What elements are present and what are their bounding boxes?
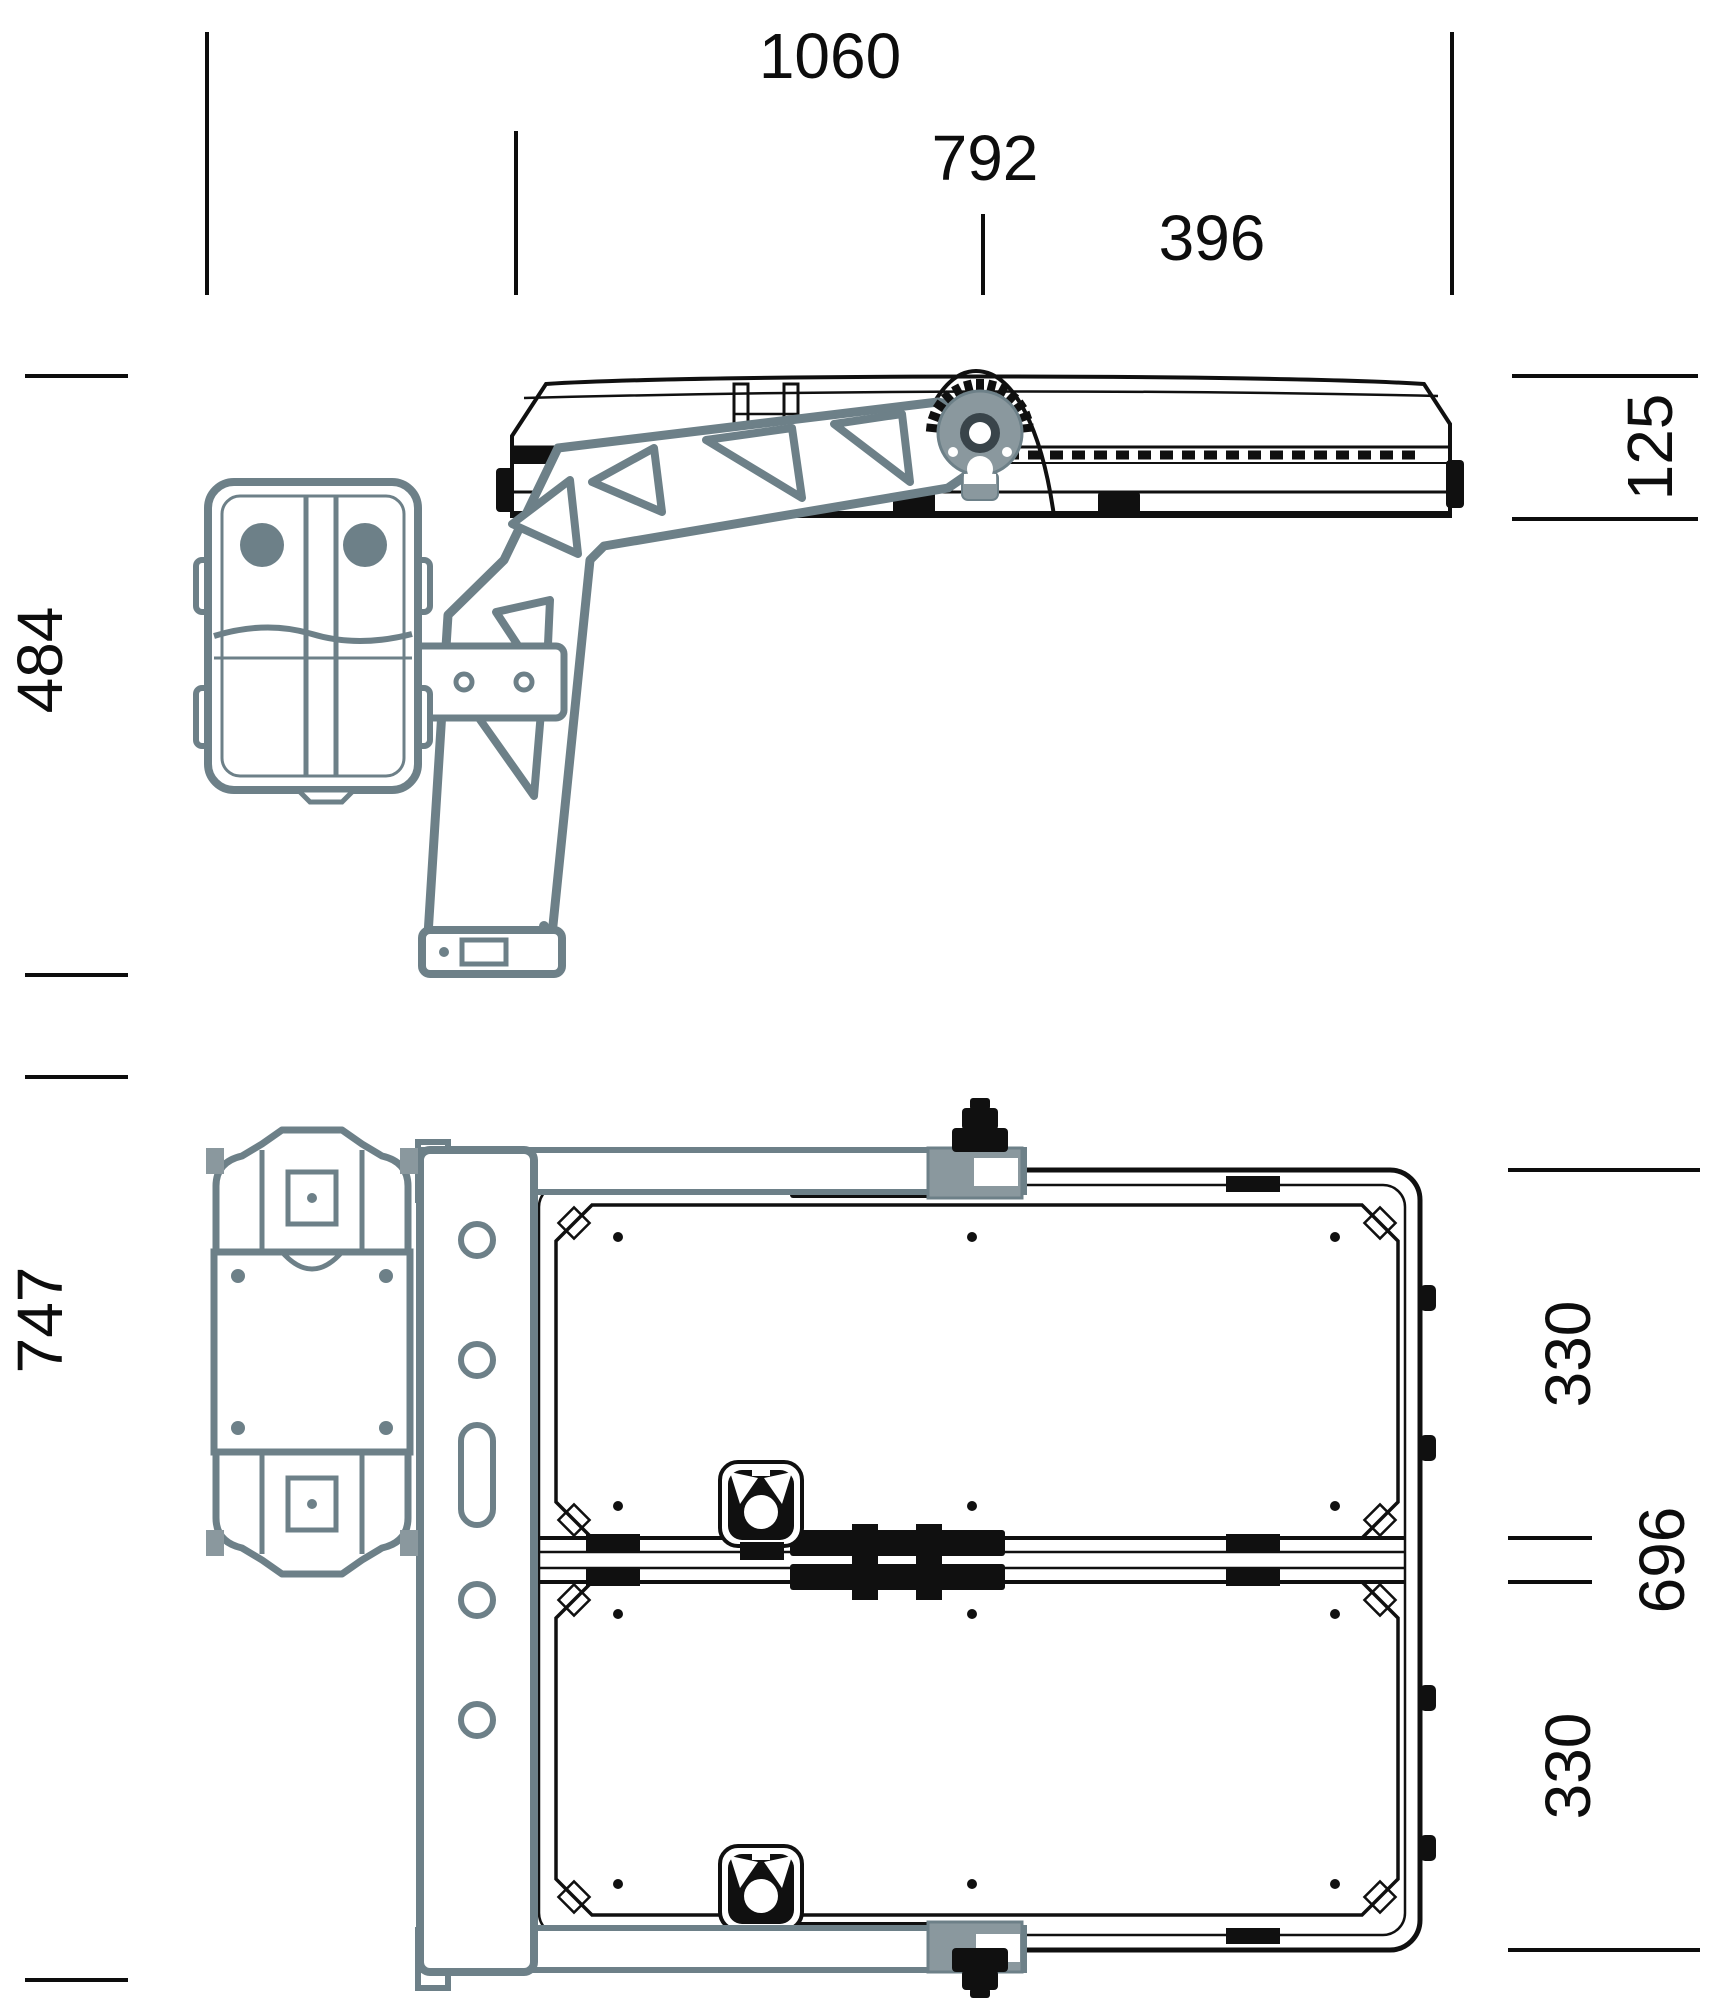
dim-housing-height: 125 <box>1614 394 1686 501</box>
dim-module-width-bottom: 330 <box>1532 1713 1604 1820</box>
drive-unit-plan <box>206 1130 418 1574</box>
plan-view <box>206 1098 1436 1998</box>
mounting-plate <box>420 1150 534 1972</box>
dim-pivot-offset: 396 <box>1159 202 1266 274</box>
bracket-plate <box>414 646 564 718</box>
led-module-top <box>556 1205 1398 1538</box>
dim-bracket-height: 484 <box>4 607 76 714</box>
dimension-layer: 1060 792 396 125 484 747 330 696 330 <box>4 20 1700 1980</box>
dim-module-width-top: 330 <box>1532 1301 1604 1408</box>
side-view <box>196 371 1464 974</box>
dim-overall-length: 1060 <box>759 20 901 92</box>
dim-housing-length: 792 <box>932 122 1039 194</box>
lens-clip-top <box>720 1462 802 1560</box>
luminaire-plan <box>508 1158 1436 1950</box>
screw-dots <box>613 1232 1340 1889</box>
drive-unit-side <box>196 482 430 802</box>
dim-plan-height: 747 <box>4 1267 76 1374</box>
drawing-page: 1060 792 396 125 484 747 330 696 330 <box>0 0 1714 2000</box>
dim-frame-width: 696 <box>1626 1507 1698 1614</box>
technical-drawing: 1060 792 396 125 484 747 330 696 330 <box>0 0 1714 2000</box>
led-module-bottom <box>556 1582 1398 1915</box>
motor-cap <box>240 523 284 567</box>
adjust-knob-top <box>952 1098 1008 1152</box>
